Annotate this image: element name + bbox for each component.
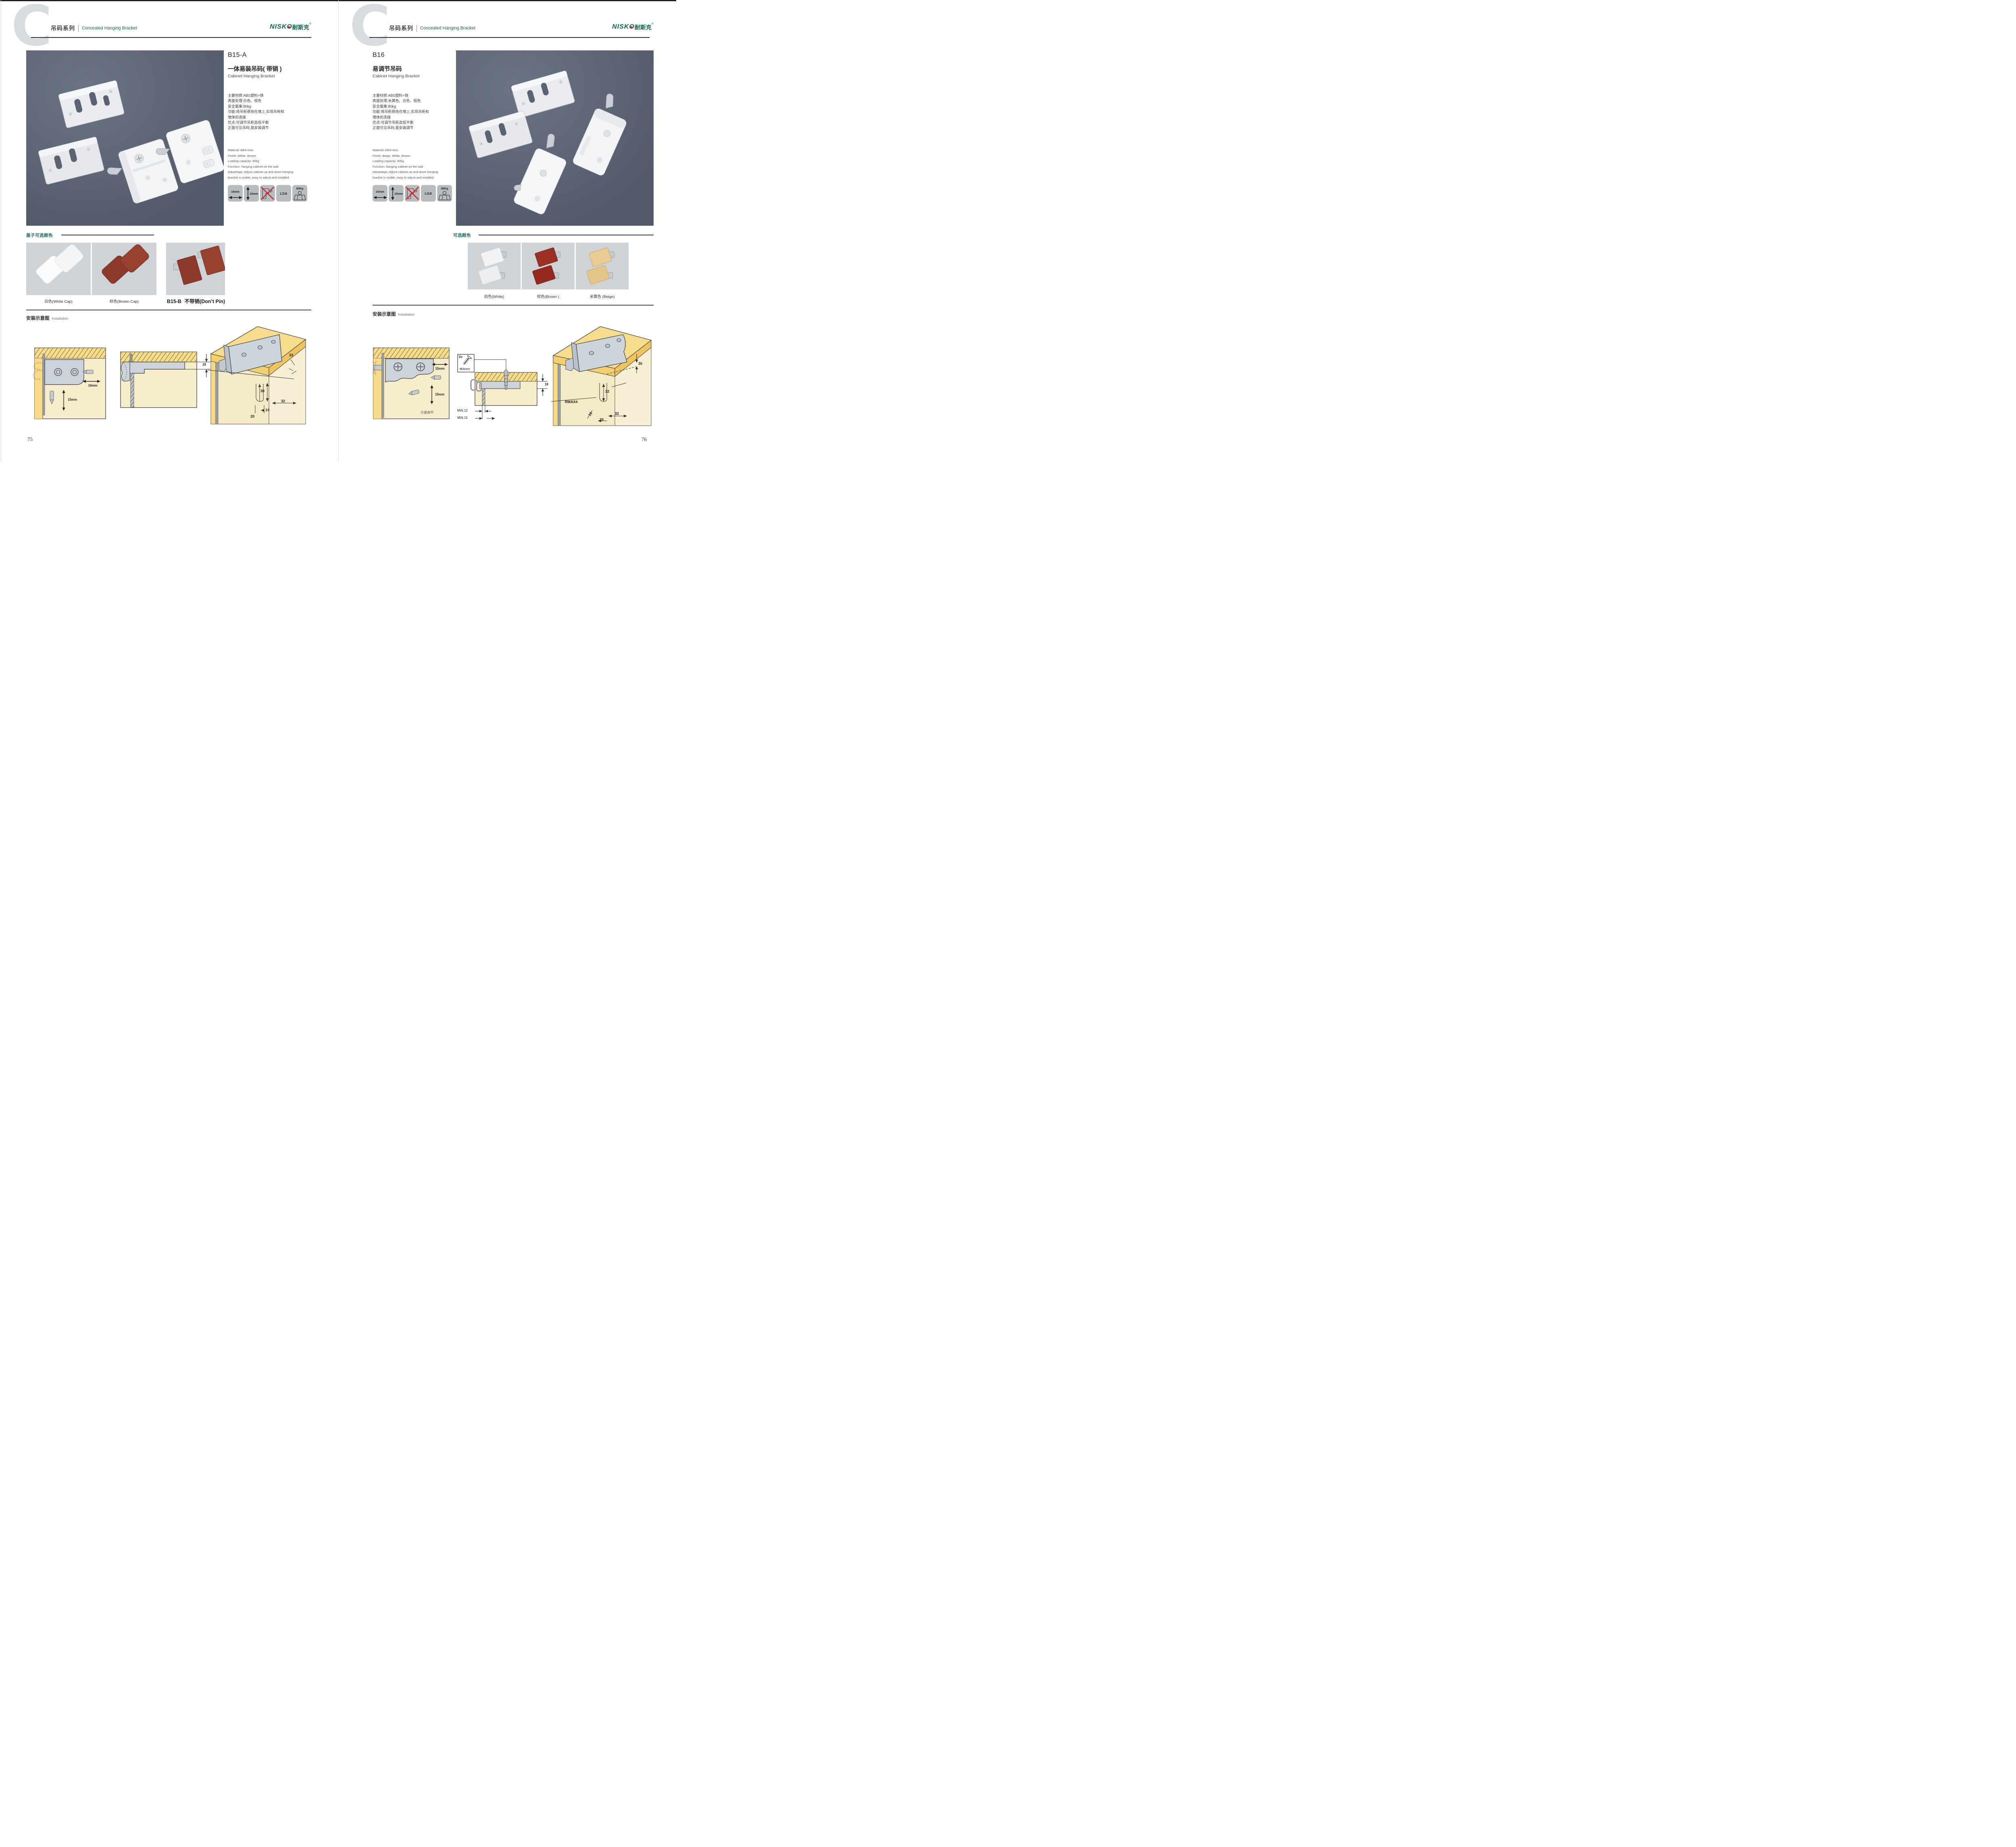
product-photo-b15a [26,50,224,226]
spec-line: Finish: White, Brown [228,153,294,159]
swatch-white [468,243,521,289]
drill-depth-icon: 15mm [389,185,404,202]
dim-18: 18 [202,363,206,366]
product-photo-b16 [456,50,654,226]
swatch-label-white: 白色(White) [468,293,521,299]
feature-icon-strip: 10mm 15mm L [373,185,452,202]
dim-19: 19 [545,383,548,386]
dim-32: 32 [281,399,285,403]
brand-logo-reg: ® [309,23,311,25]
drill-width-icon: 16mm [228,185,243,202]
feature-icon-strip: 16mm 15mm L [228,185,307,202]
spec-line: 主要材质:ABS塑料+铁 [228,93,284,98]
spec-line: 安全载重:80kg [228,104,284,109]
header-divider [417,25,417,32]
series-letter-watermark: C [11,0,52,54]
dim-15mm: 15mm [68,398,77,401]
spec-line: 墙体的连接 [228,115,284,120]
swatch-b15b-brown-bracket [166,243,225,295]
brand-logo-dot-icon [288,26,290,29]
swatch-label-brown-cap: 棕色(Brown Cap) [92,298,156,304]
load-capacity-icon: 80Kg [292,185,307,202]
page-header: 吊码系列 Concealed Hanging Bracket [389,24,475,32]
screw-diameter: Φ4mm [460,367,470,371]
dim-30: 30 [260,389,264,393]
spec-line: Loading capacity: 80kg [228,158,294,164]
product-photo-illustration [26,50,224,226]
spec-line: 安全载重:80kg [373,104,429,109]
spec-line: Finish: Beige, White, Brown [373,153,438,159]
load-capacity-icon: 80Kg [437,185,452,202]
spec-line: bracket is visible, easy to adjust and i… [228,175,294,181]
spec-line: 优点:可调节吊柜高低平衡 [373,120,429,125]
section-rule [26,310,311,310]
dim-15mm-vertical: 15mm [435,393,444,396]
dim-20: 20 [600,418,604,422]
spec-line: 功能:将吊柜悬挂在墙上,实现吊柜和 [228,109,284,114]
dim-16mm: 16mm [83,384,102,387]
spec-line: Advantage: Adjust cabinet up and down ha… [228,169,294,175]
swatch-brown [522,243,575,289]
lga-certificate-icon: LGA [276,185,291,202]
spec-line: Material: ABS+iron [228,148,294,153]
series-title-en: Concealed Hanging Bracket [82,26,137,31]
dim-20: 20 [250,414,254,418]
swatch-white-cap [26,243,91,295]
dim-33: 33 [289,353,293,357]
dim-rmax4: RMAX4 [565,400,578,404]
catalog-spread: C 吊码系列 Concealed Hanging Bracket NISKO 耐… [0,0,676,462]
installation-title-cn: 安装示意图 [26,316,50,321]
installation-diagram-1: 16mm 15mm [29,347,106,419]
header-rule [31,37,311,38]
spec-line: Function: hanging cabinet on the wall [373,164,438,170]
product-name-en: Cabinet Hanging Bracket [228,74,275,79]
drill-depth-value: 15mm [391,192,406,196]
dim-14: 14 [265,408,269,412]
brand-logo: NISKO 耐斯克 ® [612,23,654,31]
page-number: 76 [641,436,647,443]
dim-30: 30 [638,362,642,366]
b15b-label: 不带销(Don’t Pin) [184,299,225,304]
product-specs-cn: 主要材质:ABS塑料+铁 表面处理:白色、棕色 安全载重:80kg 功能:将吊柜… [228,93,284,131]
spec-line: 表面处理:白色、棕色 [228,98,284,104]
series-title-cn: 吊码系列 [51,24,75,32]
installation-diagram-1: 15mm 15mm 方便调节 [373,347,450,419]
swatch-label-brown: 棕色(Brown ) [522,293,575,299]
page-gutter [338,0,339,462]
cap-colors-title: 盖子可选颜色 [26,232,53,238]
spec-line: Advantage: Adjust cabinet up and down ha… [373,169,438,175]
product-name-en: Cabinet Hanging Bracket [373,74,420,79]
installation-title-en: Installation [52,316,69,320]
spec-line: 优点:可调节吊柜高低平衡 [228,120,284,125]
drill-width-icon: 10mm [373,185,387,202]
spec-line: 功能:将吊柜悬挂在墙上,实现吊柜和 [373,109,429,114]
brand-logo-cn: 耐斯克 [635,23,652,31]
installation-diagram-3: 33 30 32 20 14 [208,322,308,429]
installation-heading: 安装示意图Installation [26,314,68,322]
dim-32: 32 [605,389,609,393]
catalog-page-right: C 吊码系列 Concealed Hanging Bracket NISKO 耐… [338,0,676,462]
spec-line: Loading capacity: 80kg [373,158,438,164]
brand-logo-cn: 耐斯克 [292,23,309,31]
drill-width-value: 10mm [373,190,387,193]
dim-32-bottom: 32 [615,412,619,416]
spec-line: 主要材质:ABS塑料+铁 [373,93,429,98]
colors-title: 可选颜色 [453,232,471,238]
product-code: B15-A [228,52,247,59]
swatch-label-b15b: B15-B 不带销(Don’t Pin) [160,297,232,305]
spec-line: 墙体的连接 [373,115,429,120]
no-drill-icon [260,185,275,202]
lga-certificate-icon: LGA [421,185,436,202]
product-photo-illustration [456,50,654,226]
b15b-code: B15-B [167,299,181,304]
drill-depth-value: 15mm [246,192,261,196]
spec-line: 表面处理:米黄色、白色、棕色 [373,98,429,104]
screw-qty: 2x [459,355,462,359]
lga-label: LGA [276,191,291,196]
load-value: 80Kg [292,187,307,190]
catalog-page-left: C 吊码系列 Concealed Hanging Bracket NISKO 耐… [0,0,338,462]
product-specs-en: Material: ABS+iron Finish: Beige, White,… [373,148,438,181]
swatch-beige [576,243,629,289]
dim-min12: MIN.12 [457,409,468,412]
spec-line: Function: hanging cabinet on the wall [228,164,294,170]
dim-15mm-horizontal: 15mm [430,367,450,370]
installation-diagram-3: 30 32 RMAX4 19 20 32 [551,322,654,431]
swatch-label-white-cap: 白色(White Cap) [26,298,91,304]
header-divider [78,25,79,32]
load-value: 80Kg [437,187,452,190]
spec-line: 正面可见吊码,易安装调节 [228,125,284,131]
page-header: 吊码系列 Concealed Hanging Bracket [51,24,137,32]
spec-line: bracket is visible, easy to adjust and i… [373,175,438,181]
series-title-cn: 吊码系列 [389,24,413,32]
adjust-note: 方便调节 [421,410,433,415]
product-specs-cn: 主要材质:ABS塑料+铁 表面处理:米黄色、白色、棕色 安全载重:80kg 功能… [373,93,429,131]
series-title-en: Concealed Hanging Bracket [420,26,475,31]
section-rule [373,305,654,306]
series-letter-watermark: C [350,0,390,54]
dim-min15: MIN.15 [457,416,468,420]
cap-colors-rule [61,235,154,235]
spec-line: Material: ABS+iron [373,148,438,153]
brand-logo: NISKO 耐斯克 ® [270,23,311,31]
installation-diagram-2: 18 [120,352,215,412]
installation-title-cn: 安装示意图 [373,312,396,317]
spec-line: 正面可见吊码,易安装调节 [373,125,429,131]
installation-title-en: Installation [398,312,415,316]
header-rule [369,37,650,38]
no-drill-icon [405,185,420,202]
drill-width-value: 16mm [228,190,243,193]
swatch-brown-cap [92,243,156,295]
page-number: 75 [27,436,33,443]
brand-logo-reg: ® [652,23,654,25]
product-name-cn: 一体易装吊码( 带销 ) [228,64,282,73]
product-name-cn: 易调节吊码 [373,64,402,73]
drill-depth-icon: 15mm [244,185,259,202]
installation-diagram-2: 2x Φ4mm 19 MIN.12 MIN.15 [456,352,553,432]
product-specs-en: Material: ABS+iron Finish: White, Brown … [228,148,294,181]
product-code: B16 [373,52,385,59]
colors-rule [479,235,654,235]
swatch-label-beige: 米黄色 (Beige) [576,293,629,299]
lga-label: LGA [421,191,436,196]
brand-logo-dot-icon [630,26,633,29]
installation-heading: 安装示意图Installation [373,310,414,318]
